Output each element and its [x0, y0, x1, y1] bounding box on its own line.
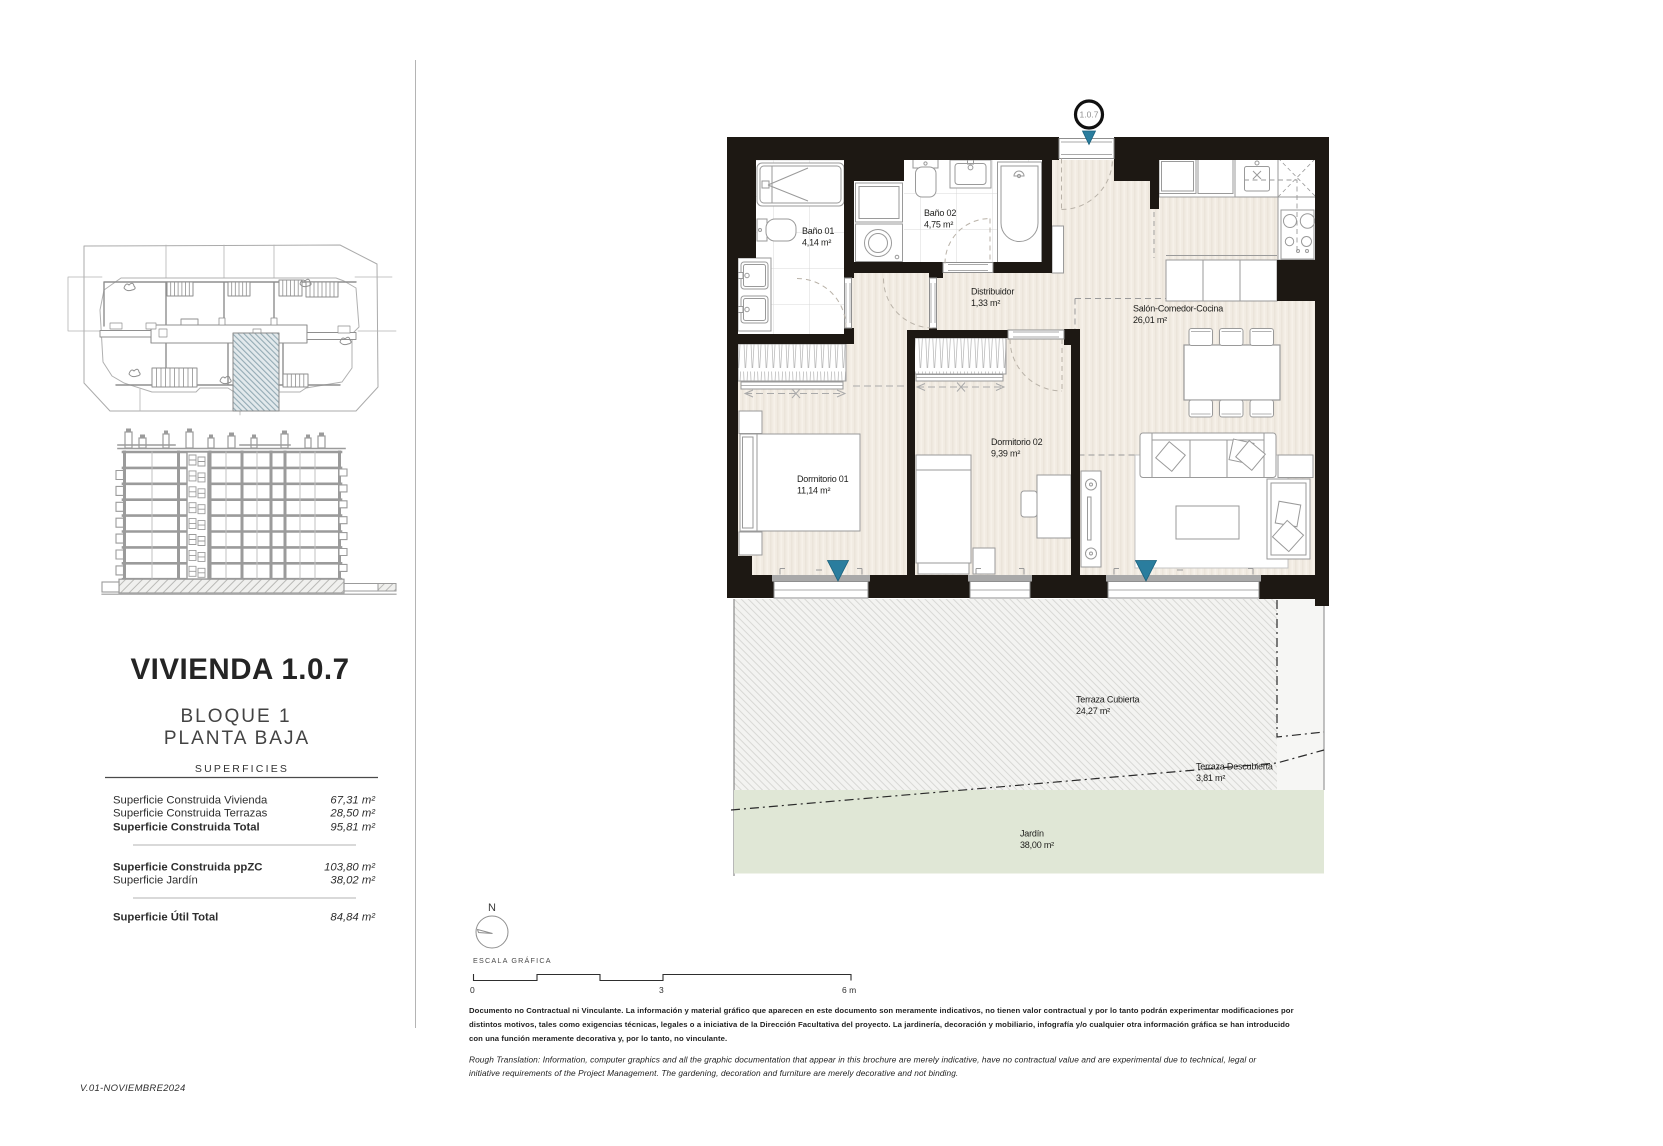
svg-text:0: 0 [470, 985, 475, 995]
svg-text:26,01 m²: 26,01 m² [1133, 315, 1167, 325]
svg-text:BLOQUE 1: BLOQUE 1 [180, 706, 291, 727]
svg-text:N: N [488, 902, 496, 914]
svg-text:initiative requirements of the: initiative requirements of the Project M… [469, 1068, 958, 1078]
svg-text:24,27 m²: 24,27 m² [1076, 706, 1110, 716]
svg-text:V.01-NOVIEMBRE2024: V.01-NOVIEMBRE2024 [80, 1083, 186, 1094]
svg-text:Salón-Comedor-Cocina: Salón-Comedor-Cocina [1133, 304, 1223, 314]
svg-text:Rough Translation: Information: Rough Translation: Information, computer… [469, 1055, 1257, 1065]
svg-text:Terraza Cubierta: Terraza Cubierta [1076, 695, 1140, 705]
svg-text:3,81 m²: 3,81 m² [1196, 773, 1225, 783]
svg-text:Superficie Construida Total: Superficie Construida Total [113, 822, 260, 834]
svg-text:4,14 m²: 4,14 m² [802, 238, 831, 248]
svg-text:3: 3 [659, 985, 664, 995]
svg-text:Baño 02: Baño 02 [924, 208, 956, 218]
svg-text:Distribuidor: Distribuidor [971, 287, 1014, 297]
svg-text:Dormitorio 02: Dormitorio 02 [991, 437, 1043, 447]
svg-text:103,80 m²: 103,80 m² [324, 862, 376, 874]
svg-text:38,02 m²: 38,02 m² [330, 875, 376, 887]
svg-text:Documento no Contractual ni Vi: Documento no Contractual ni Vinculante. … [469, 1006, 1294, 1015]
svg-text:9,39 m²: 9,39 m² [991, 449, 1020, 459]
svg-text:67,31 m²: 67,31 m² [330, 795, 376, 807]
svg-text:PLANTA BAJA: PLANTA BAJA [164, 728, 310, 749]
svg-text:11,14 m²: 11,14 m² [797, 486, 830, 496]
svg-text:1,33 m²: 1,33 m² [971, 298, 1000, 308]
svg-text:84,84 m²: 84,84 m² [330, 912, 376, 924]
svg-text:95,81 m²: 95,81 m² [330, 822, 376, 834]
svg-text:VIVIENDA 1.0.7: VIVIENDA 1.0.7 [130, 653, 349, 686]
svg-text:SUPERFICIES: SUPERFICIES [195, 763, 289, 775]
svg-text:Dormitorio 01: Dormitorio 01 [797, 474, 849, 484]
svg-text:1.0.7: 1.0.7 [1080, 110, 1099, 120]
svg-text:Superficie Construida ppZC: Superficie Construida ppZC [113, 862, 262, 874]
svg-text:38,00 m²: 38,00 m² [1020, 840, 1054, 850]
svg-text:Superficie Útil Total: Superficie Útil Total [113, 911, 218, 924]
svg-text:Superficie Construida Terrazas: Superficie Construida Terrazas [113, 808, 268, 820]
svg-text:Superficie Construida Vivienda: Superficie Construida Vivienda [113, 795, 268, 807]
svg-text:4,75 m²: 4,75 m² [924, 220, 953, 230]
svg-text:distintos motivos, tales como: distintos motivos, tales como exigencias… [469, 1020, 1290, 1029]
svg-text:ESCALA GRÁFICA: ESCALA GRÁFICA [473, 956, 552, 965]
svg-text:Baño 01: Baño 01 [802, 226, 834, 236]
svg-text:28,50 m²: 28,50 m² [329, 808, 376, 820]
svg-text:Superficie Jardín: Superficie Jardín [113, 875, 198, 887]
svg-text:Terraza Descubierta: Terraza Descubierta [1196, 762, 1273, 772]
svg-text:6 m: 6 m [842, 985, 856, 995]
svg-text:con una función meramente deco: con una función meramente decorativa y, … [469, 1034, 727, 1043]
svg-text:Jardín: Jardín [1020, 829, 1044, 839]
